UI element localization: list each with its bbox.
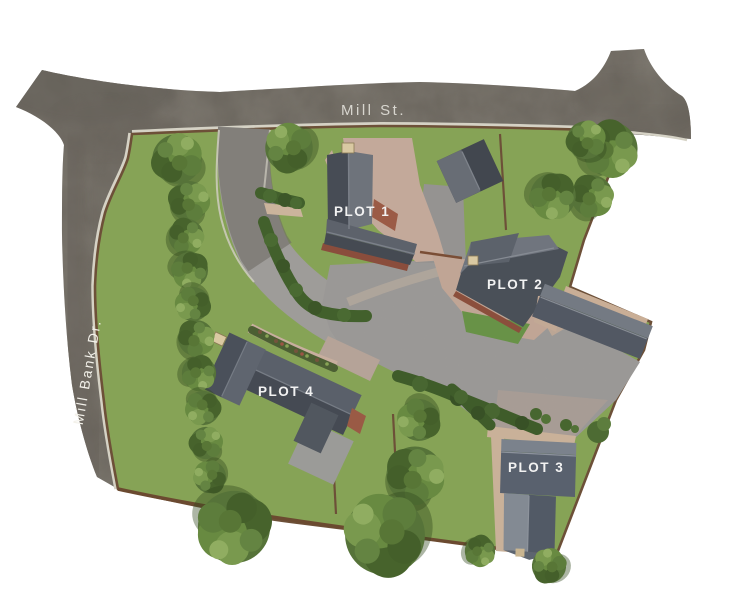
svg-text:PLOT 2: PLOT 2 [487, 277, 543, 292]
svg-text:PLOT 3: PLOT 3 [508, 460, 564, 475]
svg-text:PLOT 1: PLOT 1 [334, 204, 390, 219]
svg-text:PLOT 4: PLOT 4 [258, 384, 314, 399]
svg-text:Mill St.: Mill St. [341, 102, 406, 119]
